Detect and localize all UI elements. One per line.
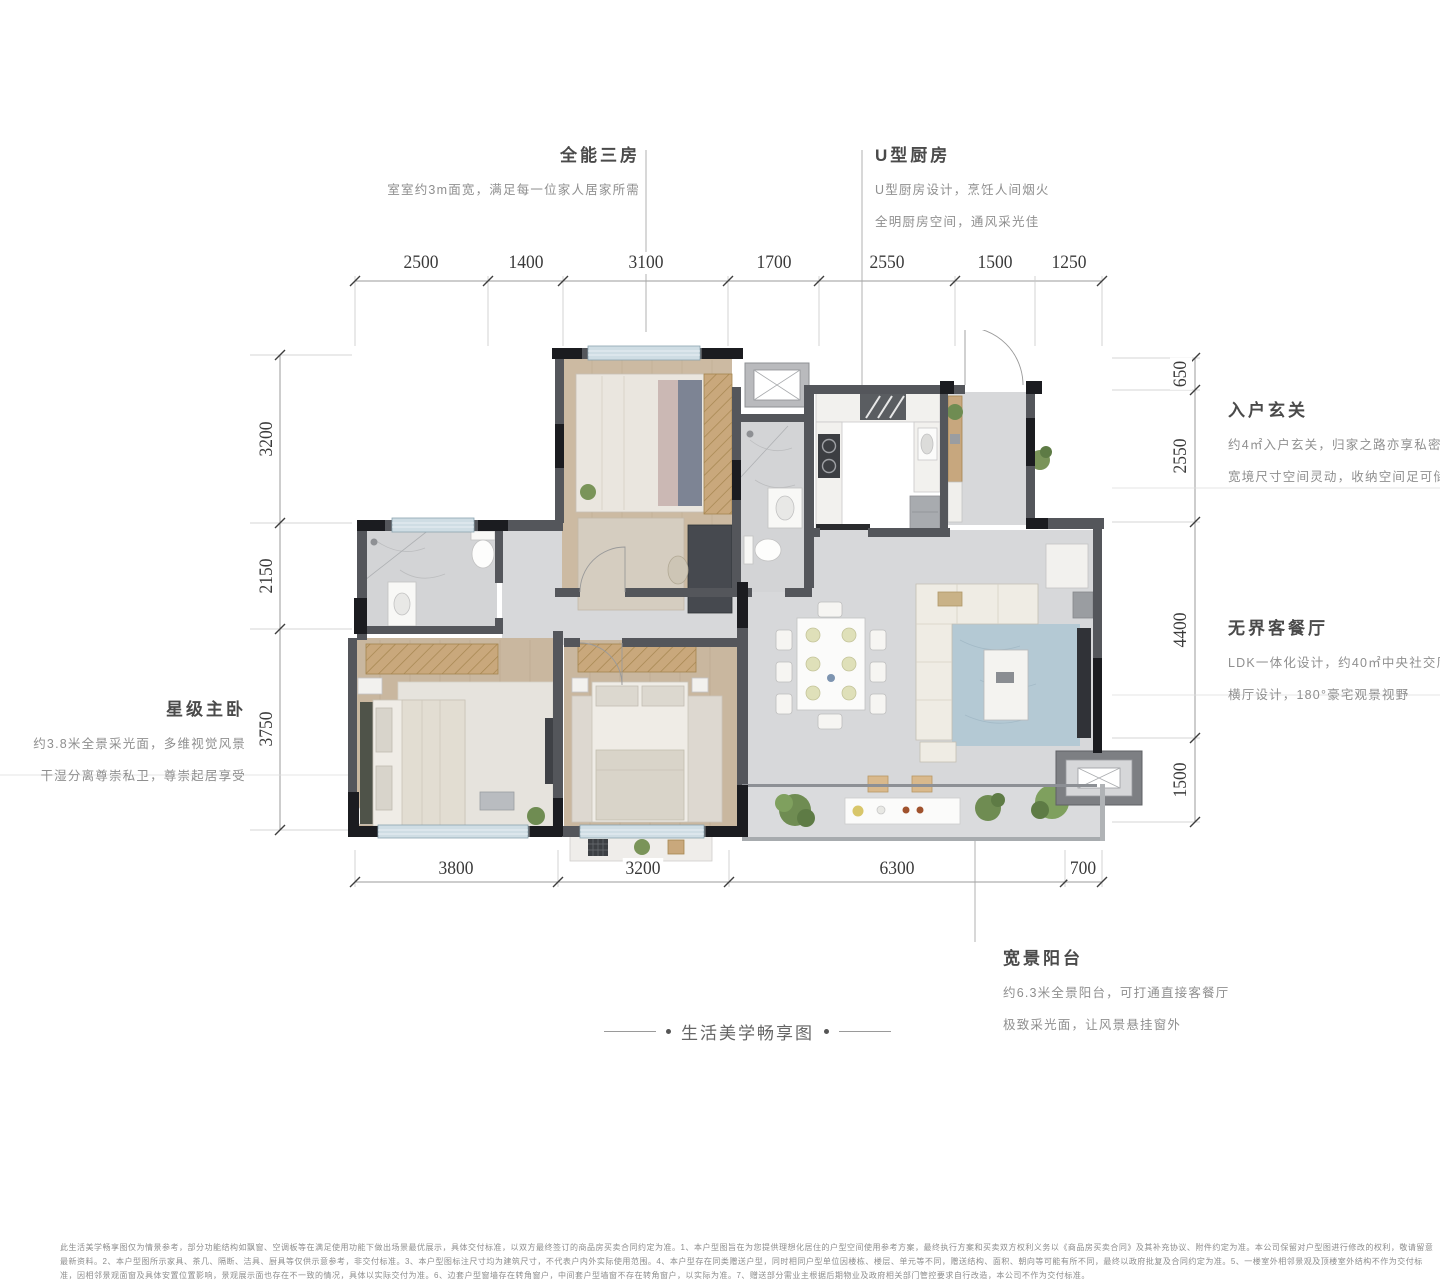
dim-label: 2500: [401, 252, 441, 274]
annotation-entry: 入户玄关 约4㎡入户玄关，归家之路亦享私密 宽境尺寸空间灵动，收纳空间足可储: [1228, 396, 1440, 485]
dim-label: 700: [1067, 858, 1099, 880]
annotation-master: 星级主卧 约3.8米全景采光面，多维视觉风景 干湿分离尊崇私卫，尊崇起居享受: [8, 695, 246, 784]
dim-label: 650: [1170, 358, 1192, 390]
annotation-living: 无界客餐厅 LDK一体化设计，约40㎡中央社交厅 横厅设计，180°豪宅观景视野: [1228, 614, 1440, 703]
caption-text: 生活美学畅享图: [681, 1019, 814, 1044]
annotation-kitchen-title: U型厨房: [875, 141, 1275, 166]
annotation-living-desc2: 横厅设计，180°豪宅观景视野: [1228, 684, 1440, 703]
kitchen-fixtures: [816, 392, 940, 530]
caption-line-left: [604, 1031, 656, 1032]
annotation-kitchen-desc1: U型厨房设计，烹饪人间烟火: [875, 179, 1275, 198]
dim-label: 3200: [256, 419, 278, 459]
dim-label: 1250: [1049, 252, 1089, 274]
annotation-entry-title: 入户玄关: [1228, 396, 1440, 421]
dim-label: 4400: [1170, 610, 1192, 650]
ac-platform-bottom: [1056, 751, 1142, 805]
ac-platform-top: [745, 363, 809, 407]
dim-label: 1400: [506, 252, 546, 274]
annotation-balcony-title: 宽景阳台: [1003, 944, 1333, 969]
annotation-balcony: 宽景阳台 约6.3米全景阳台，可打通直接客餐厅 极致采光面，让风景悬挂窗外: [1003, 944, 1333, 1033]
annotation-entry-desc2: 宽境尺寸空间灵动，收纳空间足可储: [1228, 466, 1440, 485]
dim-label: 6300: [877, 858, 917, 880]
dim-label: 3100: [626, 252, 666, 274]
dim-label: 1700: [754, 252, 794, 274]
annotation-rooms-title: 全能三房: [330, 141, 640, 166]
bedroom2-furniture: [576, 374, 732, 613]
floor-plan: [340, 330, 1160, 865]
dim-label: 3750: [256, 709, 278, 749]
annotation-master-desc1: 约3.8米全景采光面，多维视觉风景: [8, 733, 246, 752]
dim-label: 2550: [867, 252, 907, 274]
dim-label: 3200: [623, 858, 663, 880]
caption-dot-left: [666, 1029, 671, 1034]
dim-label: 1500: [1170, 760, 1192, 800]
floorplan-page: 2500 1400 3100 1700 2550 1500 1250 3800 …: [0, 0, 1440, 1286]
disclaimer-text: 此生活美学畅享图仅为情景参考，部分功能结构如飘窗、空调板等在满足使用功能下做出场…: [60, 1241, 1436, 1283]
dim-label: 2550: [1170, 436, 1192, 476]
annotation-balcony-desc2: 极致采光面，让风景悬挂窗外: [1003, 1014, 1333, 1033]
annotation-kitchen-desc2: 全明厨房空间，通风采光佳: [875, 211, 1275, 230]
caption: 生活美学畅享图: [604, 1019, 891, 1044]
annotation-kitchen: U型厨房 U型厨房设计，烹饪人间烟火 全明厨房空间，通风采光佳: [875, 141, 1275, 230]
annotation-balcony-desc1: 约6.3米全景阳台，可打通直接客餐厅: [1003, 982, 1333, 1001]
annotation-rooms: 全能三房 室室约3m面宽，满足每一位家人居家所需: [330, 141, 640, 198]
annotation-rooms-desc: 室室约3m面宽，满足每一位家人居家所需: [330, 179, 640, 198]
dim-label: 1500: [975, 252, 1015, 274]
annotation-living-desc1: LDK一体化设计，约40㎡中央社交厅: [1228, 652, 1440, 671]
annotation-master-title: 星级主卧: [8, 695, 246, 720]
dim-label: 3800: [436, 858, 476, 880]
annotation-entry-desc1: 约4㎡入户玄关，归家之路亦享私密: [1228, 434, 1440, 453]
dim-label: 2150: [256, 556, 278, 596]
caption-line-right: [839, 1031, 891, 1032]
caption-dot-right: [824, 1029, 829, 1034]
annotation-master-desc2: 干湿分离尊崇私卫，尊崇起居享受: [8, 765, 246, 784]
annotation-living-title: 无界客餐厅: [1228, 614, 1440, 639]
